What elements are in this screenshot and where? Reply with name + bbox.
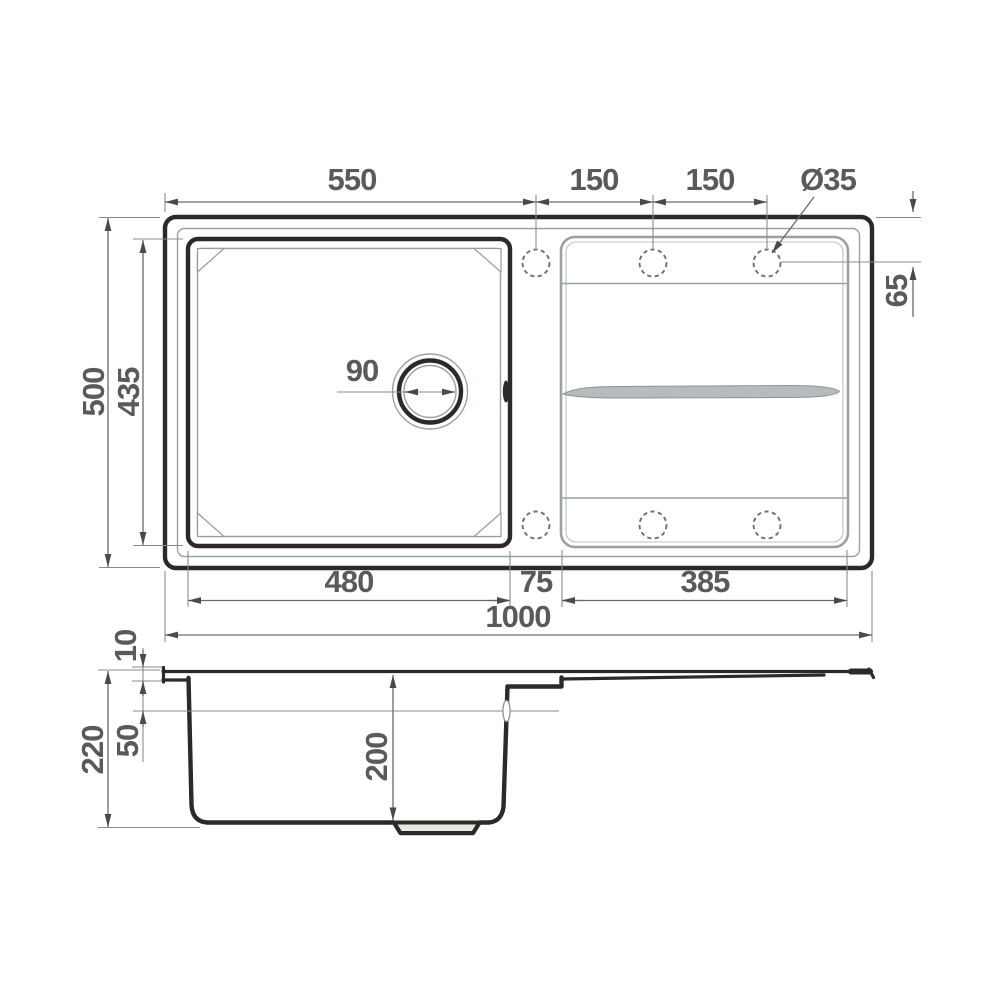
sink-technical-drawing-page: 550 150 150 Ø35 65 [0, 0, 1000, 1000]
tap-hole-bottom-2 [640, 512, 667, 539]
tap-hole-bottom-3 [754, 512, 781, 539]
dimension-label: 75 [520, 564, 553, 599]
tap-hole-top-1 [523, 250, 550, 277]
dimension-label: Ø35 [800, 162, 856, 197]
dimension-label: 1000 [485, 599, 550, 634]
dimension-label: 480 [325, 564, 374, 599]
overflow-hole-side [503, 701, 510, 722]
sink-technical-drawing: 550 150 150 Ø35 65 [0, 0, 1000, 1000]
dimension-label: 500 [76, 368, 111, 417]
dimension-label: 90 [346, 353, 379, 388]
dimension-label: 220 [75, 726, 110, 775]
drainage-groove [563, 386, 840, 399]
dimension-label: 385 [681, 564, 731, 599]
dimension-label: 10 [108, 630, 143, 663]
dimension-label: 150 [570, 162, 619, 197]
tap-hole-top-2 [640, 250, 667, 277]
tap-hole-top-3 [754, 250, 781, 277]
tap-hole-bottom-1 [523, 512, 550, 539]
overflow-hole [503, 381, 509, 403]
dimension-label: 150 [686, 162, 735, 197]
dimension-label: 200 [359, 733, 394, 782]
dimension-label: 65 [879, 274, 914, 307]
dimension-label: 50 [110, 725, 145, 758]
dimension-label: 550 [328, 162, 377, 197]
dimension-label: 435 [111, 367, 146, 417]
